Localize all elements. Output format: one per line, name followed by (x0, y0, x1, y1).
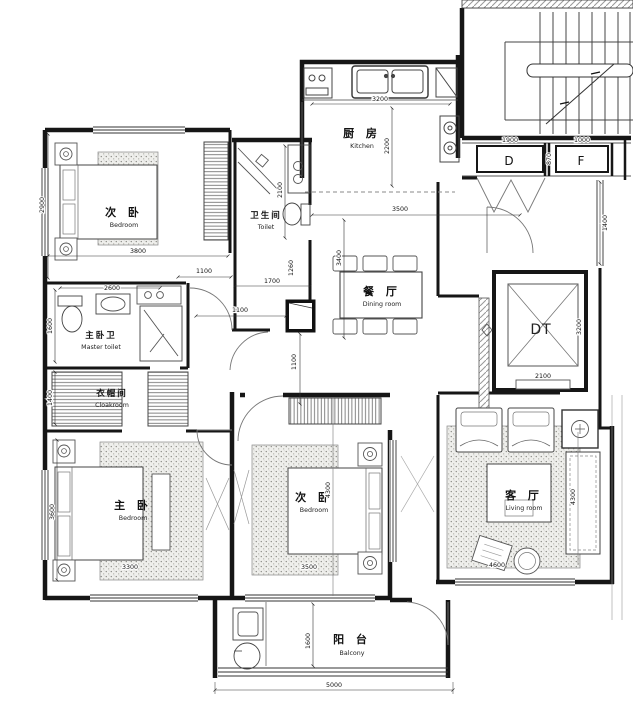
parapet-hatch (462, 0, 633, 8)
room-label-master-bedroom-en: Bedroom (119, 515, 147, 522)
dim-kitchen-w: 3200 (372, 96, 388, 103)
elevator-label: DT (530, 322, 551, 338)
dim-hall-a: 1100 (232, 307, 248, 314)
room-label-toilet-en: Toilet (257, 224, 275, 231)
hall-door-arc (487, 207, 533, 253)
room-label-bedroom-mid-en: Bedroom (300, 507, 328, 514)
room-label-kitchen-zh: 厨 房 (343, 126, 381, 140)
dim-bedroom-mid-h: 4300 (325, 482, 332, 498)
dim-dining-h: 3400 (336, 250, 343, 266)
door-label-f: F (578, 154, 585, 168)
dim-living-w: 4600 (489, 562, 505, 569)
dim-corridor-a: 1100 (196, 268, 212, 275)
room-label-master-toilet-en: Master toilet (81, 344, 121, 351)
dim-master-toilet-h: 1600 (47, 318, 54, 334)
staircase (505, 12, 633, 134)
room-label-living-en: Living room (505, 505, 542, 512)
dim-toilet-w: 1700 (264, 278, 280, 285)
dim-toilet-s: 1260 (288, 260, 295, 276)
dim-elevator-w: 2100 (535, 373, 551, 380)
cloakroom (52, 372, 188, 426)
dim-bedroom-mid-w: 3500 (301, 564, 317, 571)
toilet (230, 145, 310, 370)
dim-elevator-h: 3200 (576, 319, 583, 335)
dim-balcony-h: 1600 (305, 633, 312, 649)
dim-kitchen-h: 2200 (384, 138, 391, 154)
dim-balcony-w: 5000 (326, 682, 342, 689)
floor-plan-canvas: D F 厨 房 Kitchen 次 卧 Bedroom (0, 0, 633, 709)
room-label-cloakroom-zh: 衣帽间 (96, 388, 128, 399)
room-label-master-toilet-zh: 主卧卫 (85, 330, 117, 341)
dim-cloakroom-h: 1400 (47, 390, 54, 406)
shaft-wall-hatch (479, 298, 489, 426)
dim-door-f: 1000 (574, 137, 590, 144)
dim-master-bedroom-h: 3600 (49, 504, 56, 520)
room-label-bedroom-top-en: Bedroom (110, 222, 138, 229)
bedroom-top (55, 142, 228, 260)
room-label-dining-zh: 餐 厅 (362, 284, 401, 298)
dim-bedroom-top-w: 3800 (130, 248, 146, 255)
room-label-balcony-zh: 阳 台 (333, 632, 371, 646)
room-label-toilet-zh: 卫生间 (250, 210, 282, 221)
dim-dining-w: 3500 (392, 206, 408, 213)
room-label-bedroom-top-zh: 次 卧 (105, 205, 143, 219)
dim-master-toilet-w: 2600 (104, 285, 120, 292)
dim-master-bedroom-w: 3300 (122, 564, 138, 571)
dim-living-h: 4300 (570, 489, 577, 505)
room-label-kitchen-en: Kitchen (350, 143, 374, 150)
room-label-living-zh: 客 厅 (504, 488, 543, 502)
room-label-master-bedroom-zh: 主 卧 (114, 498, 152, 512)
dim-door-d: 1900 (502, 137, 518, 144)
dim-hall-b: 1100 (291, 354, 298, 370)
dim-bedroom-top-h: 2900 (39, 197, 46, 213)
floor-plan-page: D F 厨 房 Kitchen 次 卧 Bedroom (0, 0, 633, 709)
bedroom-middle (234, 396, 434, 575)
dim-door-gap: 870 (546, 153, 553, 165)
room-label-balcony-en: Balcony (340, 650, 365, 657)
room-label-cloakroom-en: Cloakroom (95, 402, 129, 409)
door-label-d: D (504, 154, 513, 168)
dim-right-side: 1400 (602, 215, 609, 231)
dim-toilet-h: 2100 (277, 182, 284, 198)
room-label-dining-en: Dining room (363, 301, 402, 308)
